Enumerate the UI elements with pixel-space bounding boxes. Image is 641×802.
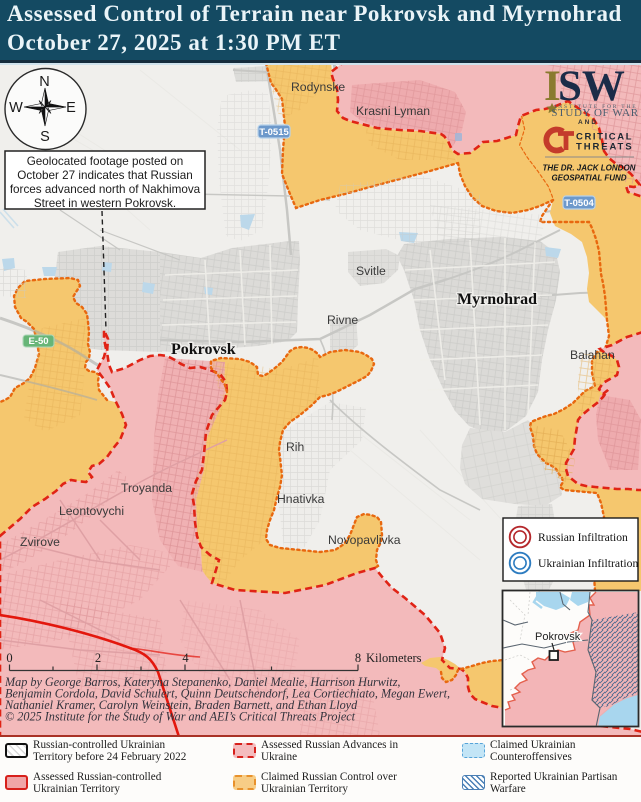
svg-text:Rodynske: Rodynske	[291, 80, 345, 94]
svg-text:Myrnohrad: Myrnohrad	[457, 291, 537, 308]
svg-text:Pokrovsk: Pokrovsk	[535, 631, 581, 643]
svg-text:S: S	[40, 129, 50, 145]
svg-text:Geolocated footage posted on: Geolocated footage posted on	[27, 155, 184, 168]
svg-text:Troyanda: Troyanda	[121, 481, 172, 495]
svg-text:Kilometers: Kilometers	[366, 651, 422, 665]
svg-text:8: 8	[355, 651, 361, 665]
svg-text:Rih: Rih	[286, 440, 304, 454]
svg-text:Leontovychi: Leontovychi	[59, 504, 124, 518]
svg-text:Pokrovsk: Pokrovsk	[171, 341, 236, 358]
svg-text:October 27 indicates that Russ: October 27 indicates that Russian	[17, 169, 192, 182]
svg-text:W: W	[9, 100, 23, 116]
svg-text:Rivne: Rivne	[327, 313, 358, 327]
svg-text:Krasni Lyman: Krasni Lyman	[356, 104, 430, 118]
svg-text:2: 2	[95, 651, 101, 665]
svg-text:N: N	[39, 74, 49, 90]
svg-text:Svitle: Svitle	[356, 264, 386, 278]
svg-text:Novopavlivka: Novopavlivka	[328, 533, 401, 547]
svg-text:E: E	[66, 100, 76, 116]
svg-text:Hnativka: Hnativka	[277, 492, 325, 506]
svg-text:T-0515: T-0515	[259, 127, 289, 138]
svg-text:forces advanced north of Nakhi: forces advanced north of Nakhimova	[10, 183, 201, 196]
svg-text:© 2025 Institute for the Study: © 2025 Institute for the Study of War an…	[5, 710, 356, 724]
svg-text:GEOSPATIAL FUND: GEOSPATIAL FUND	[551, 174, 626, 183]
svg-text:AND: AND	[578, 119, 598, 126]
svg-text:THE DR. JACK LONDON: THE DR. JACK LONDON	[543, 164, 636, 173]
svg-text:Street in western Pokrovsk.: Street in western Pokrovsk.	[34, 197, 176, 210]
svg-text:0: 0	[6, 651, 12, 665]
svg-text:THREATS: THREATS	[576, 142, 633, 153]
svg-text:STUDY OF WAR: STUDY OF WAR	[551, 107, 638, 119]
svg-text:Russian Infiltration: Russian Infiltration	[538, 531, 628, 544]
svg-text:T-0504: T-0504	[564, 198, 594, 209]
svg-text:E-50: E-50	[28, 336, 48, 347]
svg-text:Ukrainian Infiltration: Ukrainian Infiltration	[538, 557, 638, 570]
svg-text:Balahan: Balahan	[570, 348, 615, 362]
svg-text:Zvirove: Zvirove	[20, 535, 60, 549]
svg-text:4: 4	[182, 651, 189, 665]
